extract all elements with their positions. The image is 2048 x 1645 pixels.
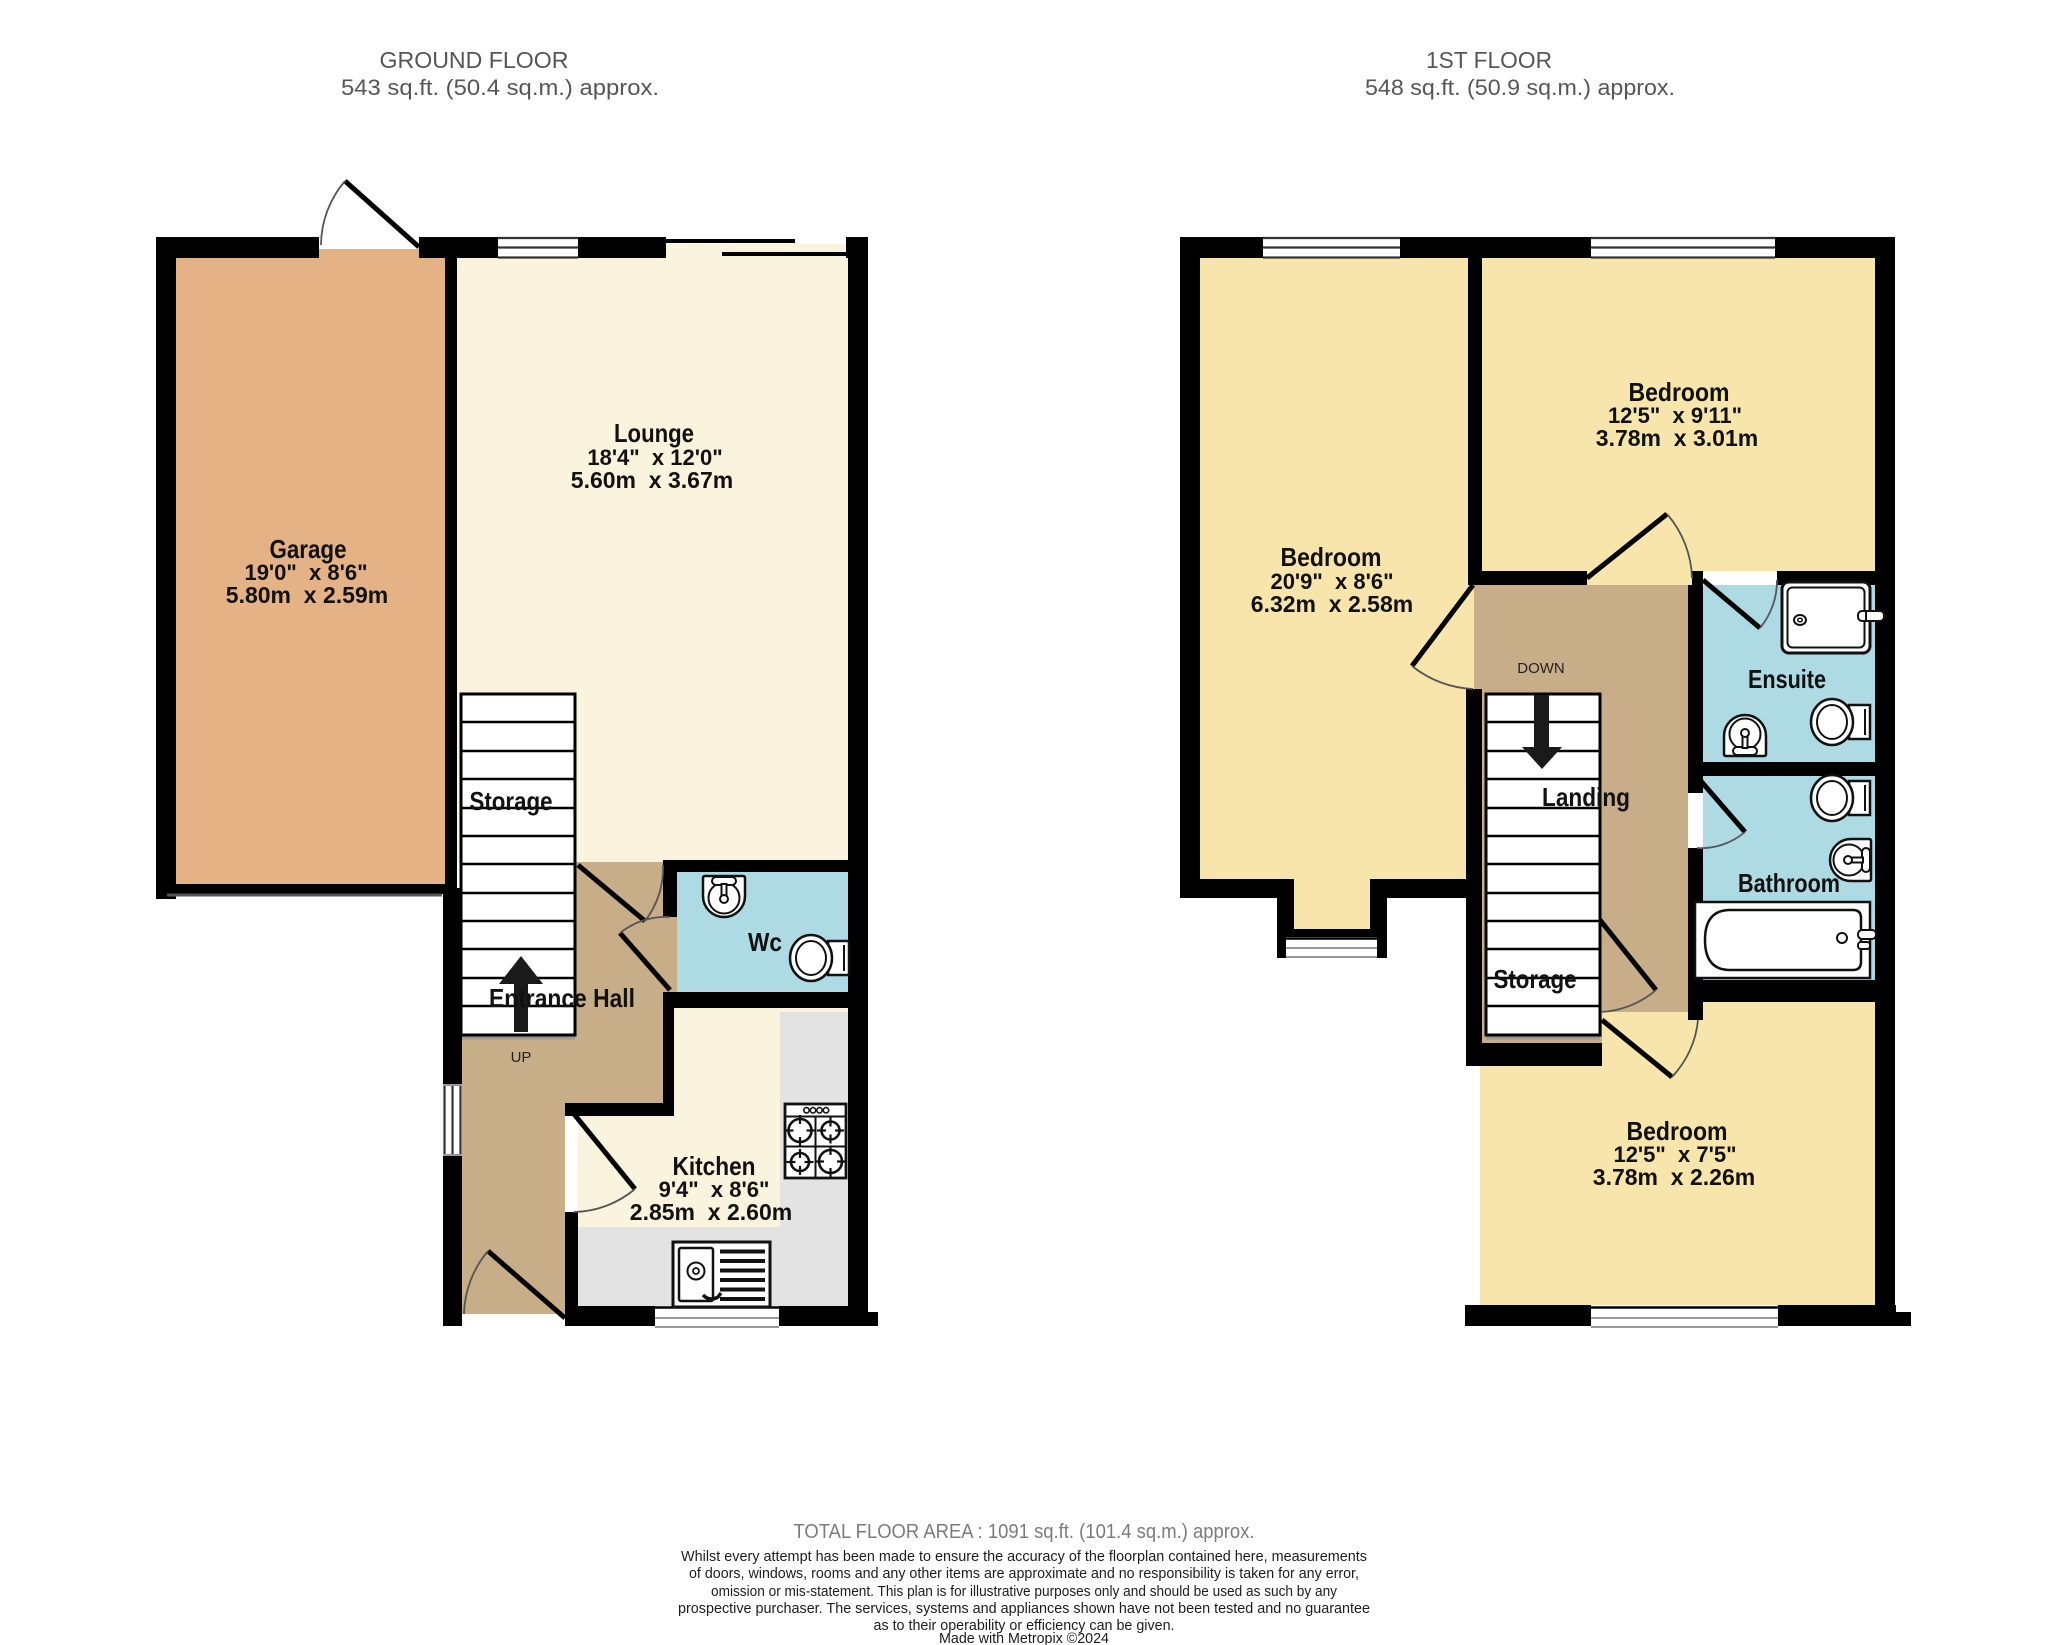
svg-text:Storage: Storage xyxy=(1494,964,1577,994)
svg-text:5.80m x 2.59m: 5.80m x 2.59m xyxy=(226,582,388,608)
svg-text:TOTAL FLOOR AREA : 1091 sq.ft.: TOTAL FLOOR AREA : 1091 sq.ft. (101.4 sq… xyxy=(794,1520,1255,1543)
svg-text:3.78m x 3.01m: 3.78m x 3.01m xyxy=(1596,425,1758,451)
svg-text:5.60m x 3.67m: 5.60m x 3.67m xyxy=(571,467,733,493)
svg-text:Lounge: Lounge xyxy=(614,418,694,448)
svg-text:Storage: Storage xyxy=(470,786,553,816)
svg-text:Made with Metropix ©2024: Made with Metropix ©2024 xyxy=(939,1630,1109,1645)
svg-text:2.85m x 2.60m: 2.85m x 2.60m xyxy=(630,1199,792,1225)
svg-text:prospective purchaser. The ser: prospective purchaser. The services, sys… xyxy=(678,1600,1370,1617)
svg-text:Bedroom: Bedroom xyxy=(1281,542,1382,572)
svg-text:Entrance Hall: Entrance Hall xyxy=(489,983,635,1013)
svg-text:3.78m x 2.26m: 3.78m x 2.26m xyxy=(1593,1164,1755,1190)
svg-text:Whilst every attempt has been: Whilst every attempt has been made to en… xyxy=(681,1548,1367,1565)
svg-text:Bathroom: Bathroom xyxy=(1738,868,1840,898)
svg-text:543 sq.ft. (50.4 sq.m.) approx: 543 sq.ft. (50.4 sq.m.) approx. xyxy=(341,75,659,100)
svg-text:548 sq.ft. (50.9 sq.m.) approx: 548 sq.ft. (50.9 sq.m.) approx. xyxy=(1365,75,1675,100)
svg-text:Ensuite: Ensuite xyxy=(1748,664,1826,694)
svg-text:1ST FLOOR: 1ST FLOOR xyxy=(1426,47,1552,73)
svg-text:Landing: Landing xyxy=(1542,782,1630,812)
svg-text:Wc: Wc xyxy=(748,927,782,957)
svg-text:6.32m x 2.58m: 6.32m x 2.58m xyxy=(1251,591,1413,617)
svg-text:DOWN: DOWN xyxy=(1517,660,1565,677)
svg-text:omission or mis-statement. Thi: omission or mis-statement. This plan is … xyxy=(711,1583,1337,1600)
svg-text:UP: UP xyxy=(511,1049,532,1066)
svg-text:of doors, windows, rooms and a: of doors, windows, rooms and any other i… xyxy=(689,1565,1359,1582)
svg-text:GROUND FLOOR: GROUND FLOOR xyxy=(380,47,569,73)
